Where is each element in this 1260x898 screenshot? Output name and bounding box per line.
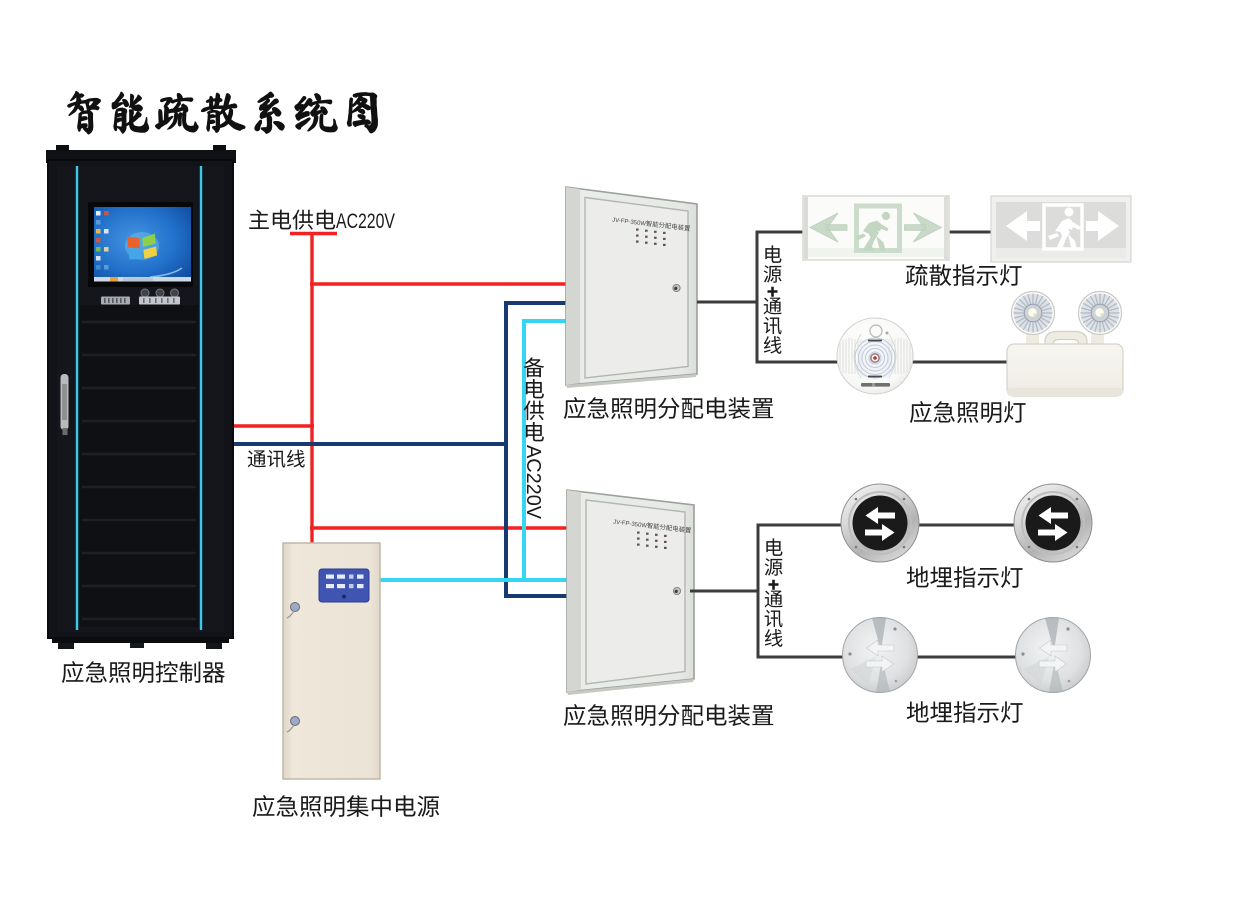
- svg-text:AC220V: AC220V: [522, 445, 545, 519]
- svg-text:AC220V: AC220V: [336, 209, 395, 233]
